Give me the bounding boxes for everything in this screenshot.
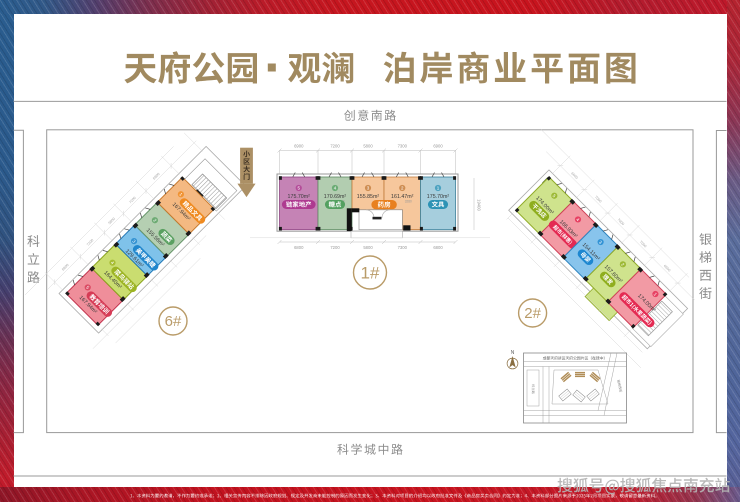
svg-text:7300: 7300	[398, 245, 408, 250]
svg-text:5800: 5800	[363, 245, 373, 250]
svg-text:6#: 6#	[165, 313, 182, 330]
svg-text:7200: 7200	[330, 245, 340, 250]
svg-text:5800: 5800	[363, 144, 373, 149]
svg-text:155.85m²: 155.85m²	[357, 194, 380, 200]
svg-text:2#: 2#	[524, 305, 541, 322]
svg-text:6800: 6800	[294, 245, 304, 250]
svg-text:1#: 1#	[361, 264, 380, 283]
svg-text:175.70m²: 175.70m²	[427, 194, 450, 200]
svg-text:175.70m²: 175.70m²	[288, 194, 311, 200]
svg-text:6900: 6900	[294, 144, 304, 149]
svg-text:19400: 19400	[477, 199, 482, 211]
svg-text:6900: 6900	[433, 144, 443, 149]
svg-text:6800: 6800	[433, 245, 443, 250]
svg-text:7200: 7200	[330, 144, 340, 149]
svg-text:7300: 7300	[398, 144, 408, 149]
svg-text:3280: 3280	[405, 200, 412, 204]
